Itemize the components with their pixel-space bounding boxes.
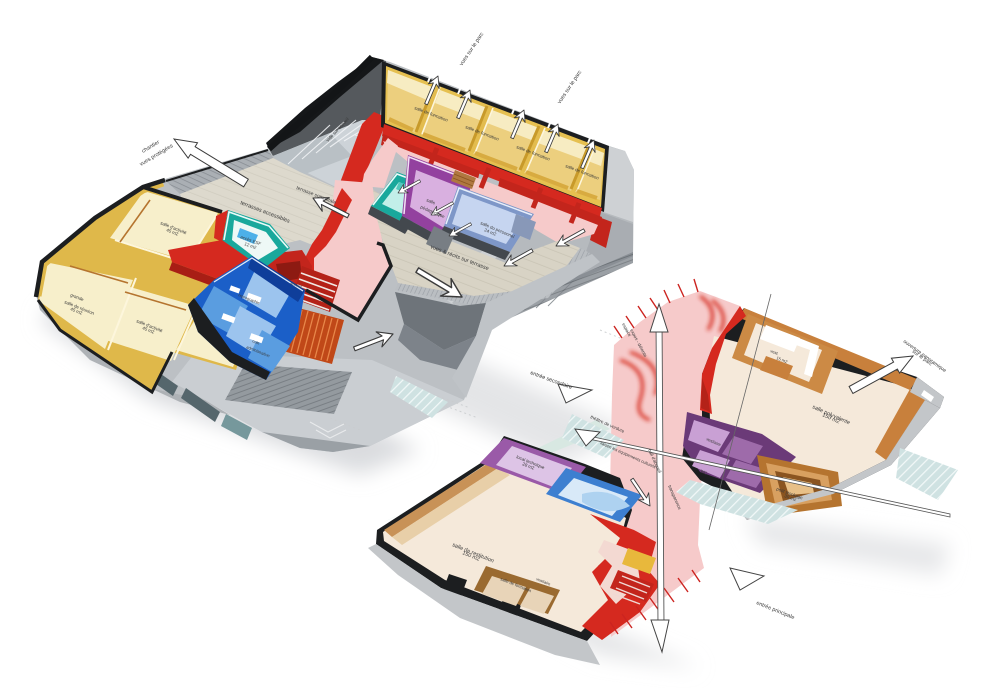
svg-text:entrée principale: entrée principale — [755, 600, 795, 621]
svg-text:vues sur le parc: vues sur le parc — [557, 69, 584, 105]
svg-text:entrée secondaire: entrée secondaire — [529, 370, 572, 391]
svg-text:vues sur le parc: vues sur le parc — [459, 31, 486, 67]
